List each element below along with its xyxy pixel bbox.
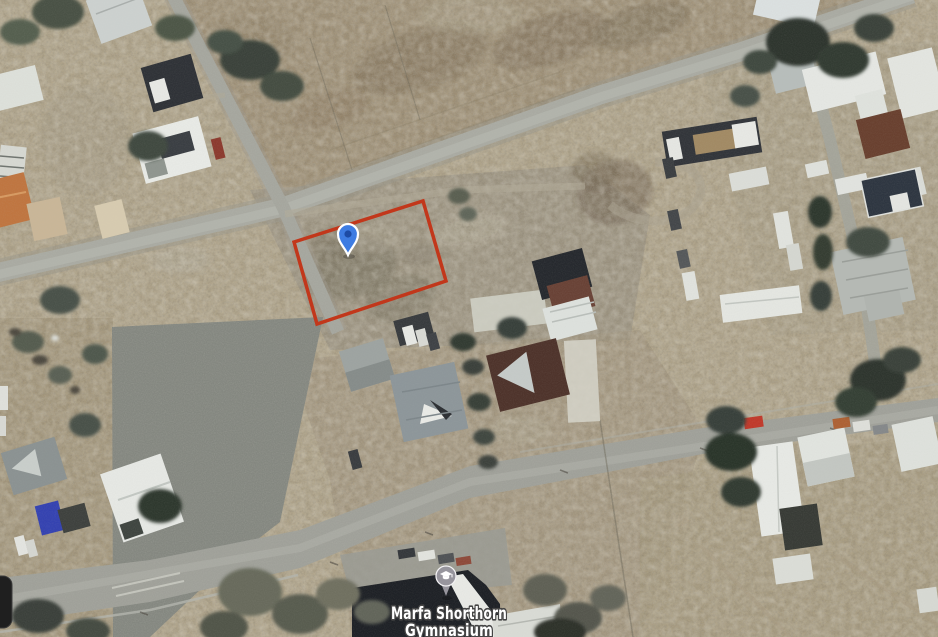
satellite-map-canvas[interactable]: Marfa Shorthorn Gymnasium — [0, 0, 938, 637]
poi-label-line2: Gymnasium — [405, 621, 493, 637]
map-ui-fragment[interactable] — [0, 576, 12, 628]
poi-label: Marfa Shorthorn Gymnasium — [391, 604, 507, 637]
